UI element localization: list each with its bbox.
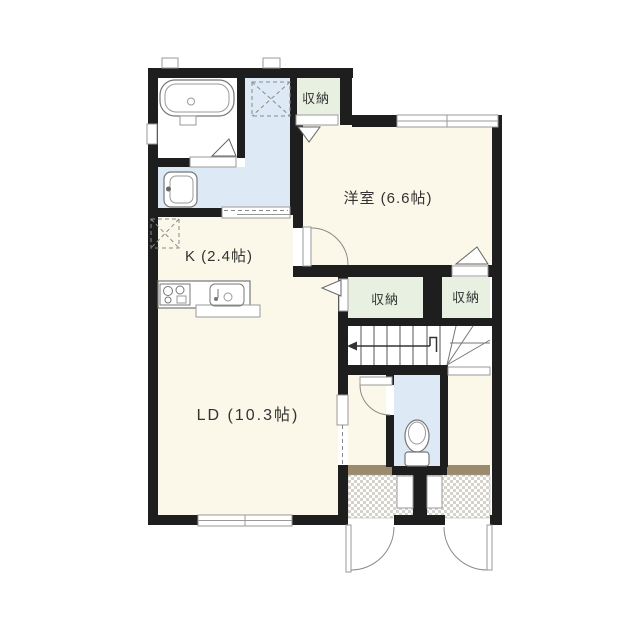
western-room-window xyxy=(397,115,498,127)
shoe-cabinet-right xyxy=(427,476,442,508)
washroom-sliding-door xyxy=(222,207,290,218)
floor-plan: 収納 洋室 (6.6帖) K (2.4帖) LD (10.3帖) 収納 収納 xyxy=(0,0,640,640)
vent-icon xyxy=(263,58,280,68)
closet-top-label: 収納 xyxy=(302,91,330,106)
vent-icon xyxy=(162,58,178,68)
closet-right-label: 収納 xyxy=(452,290,480,305)
floor-plan-page: 収納 洋室 (6.6帖) K (2.4帖) LD (10.3帖) 収納 収納 xyxy=(0,0,640,640)
living-dining-label: LD (10.3帖) xyxy=(197,406,300,424)
stair-first-step xyxy=(448,367,490,375)
washbasin xyxy=(164,172,197,207)
entry-step-right xyxy=(447,465,490,475)
entry-step-left xyxy=(348,465,392,475)
shoe-cabinet-left xyxy=(397,476,413,508)
hall-left-floor xyxy=(348,375,386,465)
western-room-label: 洋室 (6.6帖) xyxy=(343,190,432,207)
closet-left-label: 収納 xyxy=(371,292,399,307)
living-window xyxy=(198,515,292,526)
bathroom-window xyxy=(147,124,157,144)
bathroom-threshold xyxy=(190,157,236,167)
kitchen-label: K (2.4帖) xyxy=(185,248,253,265)
toilet xyxy=(405,420,429,466)
hall-right-floor xyxy=(448,373,492,465)
